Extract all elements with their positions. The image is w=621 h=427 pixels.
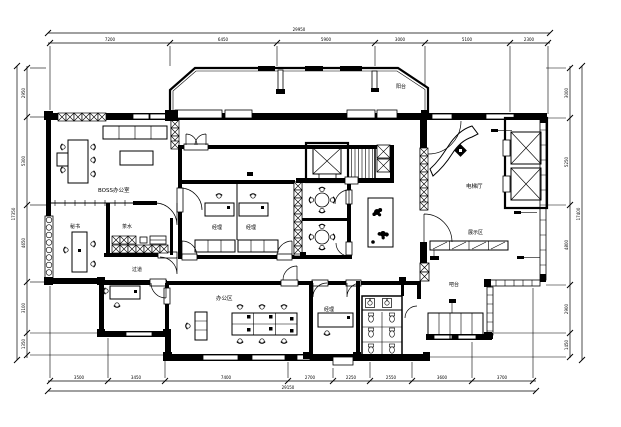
dim-label: 3450 <box>131 375 142 380</box>
dim-label: 3000 <box>395 37 406 42</box>
dim-label: 3000 <box>564 87 569 98</box>
dimension-right: 3000 5250 4800 2900 1450 17400 <box>430 63 585 363</box>
boss-office <box>57 126 167 183</box>
dim-label: 17400 <box>576 207 581 220</box>
dimension-left: 17350 2950 5300 4650 3100 1350 <box>11 63 165 363</box>
dimension-top: 29950 7200 6450 5900 3000 5100 2300 <box>45 27 553 114</box>
floor-plan-canvas: 29950 7200 6450 5900 3000 5100 2300 3500… <box>0 0 621 427</box>
dim-label: 6450 <box>218 37 229 42</box>
dim-label: 17350 <box>11 207 16 220</box>
dim-label: 1450 <box>564 339 569 350</box>
vent-shaft-small <box>420 263 429 281</box>
dim-label: 2950 <box>21 87 26 98</box>
dim-label: 3600 <box>437 375 448 380</box>
vent-shafts <box>377 145 390 172</box>
corridor-marker <box>247 172 253 176</box>
reception-desk <box>430 126 478 176</box>
dim-label: 3700 <box>497 375 508 380</box>
meeting-table-2 <box>309 224 335 250</box>
small-office <box>318 313 353 335</box>
dim-label: 7200 <box>105 37 116 42</box>
finance-room <box>104 286 140 307</box>
dim-label: 5300 <box>21 155 26 166</box>
label-elevator-hall: 电梯厅 <box>466 182 483 190</box>
dim-label: 3500 <box>74 375 85 380</box>
dim-label: 5100 <box>462 37 473 42</box>
planter <box>368 198 393 247</box>
dim-label: 29950 <box>293 27 306 32</box>
open-office <box>186 305 297 344</box>
dim-label: 7400 <box>221 375 232 380</box>
elevator-core <box>313 148 341 179</box>
dim-label: 2900 <box>564 303 569 314</box>
secretary-room <box>64 232 96 272</box>
dim-label: 3100 <box>21 302 26 313</box>
stairs <box>348 146 375 180</box>
label-open-office: 办公区 <box>216 294 233 302</box>
entry-step <box>333 357 353 365</box>
label-balcony: 阳台 <box>396 83 406 90</box>
label-boss-office: BOSS办公室 <box>98 186 130 194</box>
cabinet <box>195 312 207 340</box>
dim-label: 2550 <box>386 375 397 380</box>
meeting-table-1 <box>309 187 335 213</box>
pantry <box>112 236 168 253</box>
dim-label: 2300 <box>524 37 535 42</box>
dim-label: 2700 <box>305 375 316 380</box>
label-bar: 吧台 <box>449 281 459 288</box>
material-callouts <box>491 129 540 259</box>
dim-label: 5900 <box>321 37 332 42</box>
label-manager-a: 经理 <box>212 224 222 231</box>
sofa <box>103 126 167 139</box>
conference-table <box>68 140 88 183</box>
left-window <box>45 216 53 278</box>
dim-label: 4800 <box>564 239 569 250</box>
display-cabinet <box>430 241 508 260</box>
dim-label: 5250 <box>564 156 569 167</box>
label-pantry: 茶水 <box>122 223 132 230</box>
dim-label: 2250 <box>346 375 357 380</box>
label-manager-b: 经理 <box>246 224 256 231</box>
floor-plan-drawing: 29950 7200 6450 5900 3000 5100 2300 3500… <box>0 0 621 427</box>
label-corridor: 过道 <box>132 266 142 273</box>
label-display-area: 展示区 <box>468 230 483 236</box>
label-manager-c: 经理 <box>324 306 334 313</box>
dim-label: 29150 <box>282 385 295 390</box>
bench <box>428 299 483 339</box>
dim-label: 4650 <box>21 237 26 248</box>
restroom <box>362 296 402 356</box>
core <box>247 143 394 184</box>
dim-label: 1350 <box>21 338 26 349</box>
label-secretary: 秘书 <box>70 223 80 230</box>
coffee-table <box>120 151 153 165</box>
